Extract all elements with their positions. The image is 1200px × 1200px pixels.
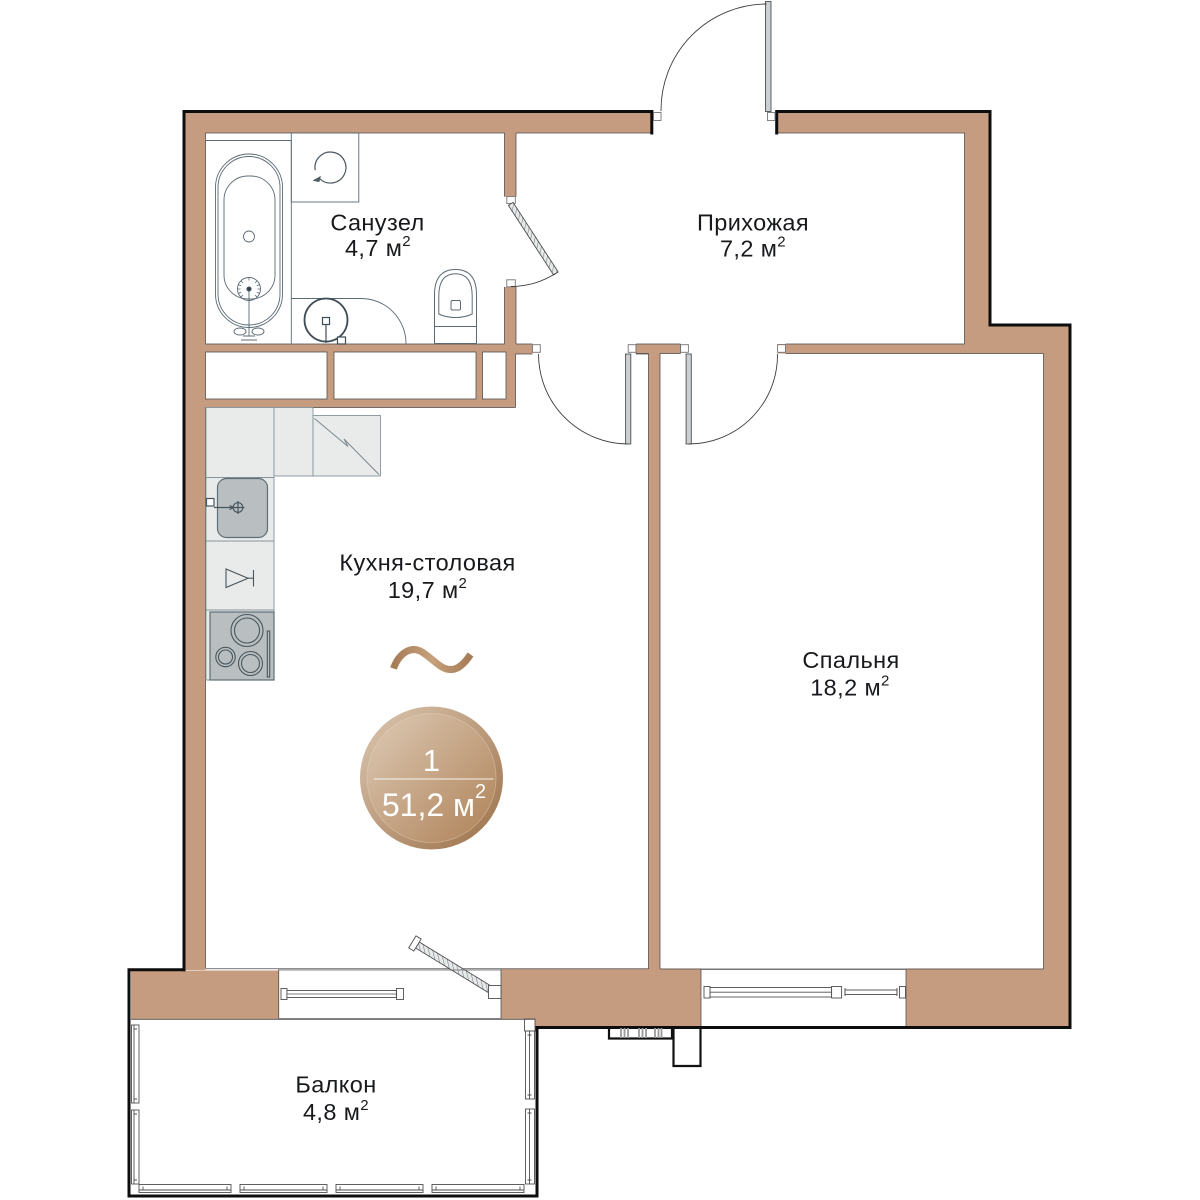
- svg-text:Прихожая: Прихожая: [697, 210, 809, 236]
- svg-text:7,2 м2: 7,2 м2: [720, 234, 786, 262]
- svg-text:Кухня-столовая: Кухня-столовая: [339, 550, 515, 576]
- svg-text:18,2 м2: 18,2 м2: [810, 673, 890, 701]
- svg-text:1: 1: [423, 743, 440, 778]
- svg-text:4,7 м2: 4,7 м2: [345, 233, 411, 261]
- svg-text:Санузел: Санузел: [330, 210, 424, 236]
- svg-text:Спальня: Спальня: [802, 647, 899, 673]
- svg-text:4,8 м2: 4,8 м2: [303, 1097, 369, 1125]
- svg-text:19,7 м2: 19,7 м2: [388, 575, 468, 603]
- svg-text:Балкон: Балкон: [295, 1072, 376, 1098]
- svg-text:51,2 м2: 51,2 м2: [382, 781, 486, 823]
